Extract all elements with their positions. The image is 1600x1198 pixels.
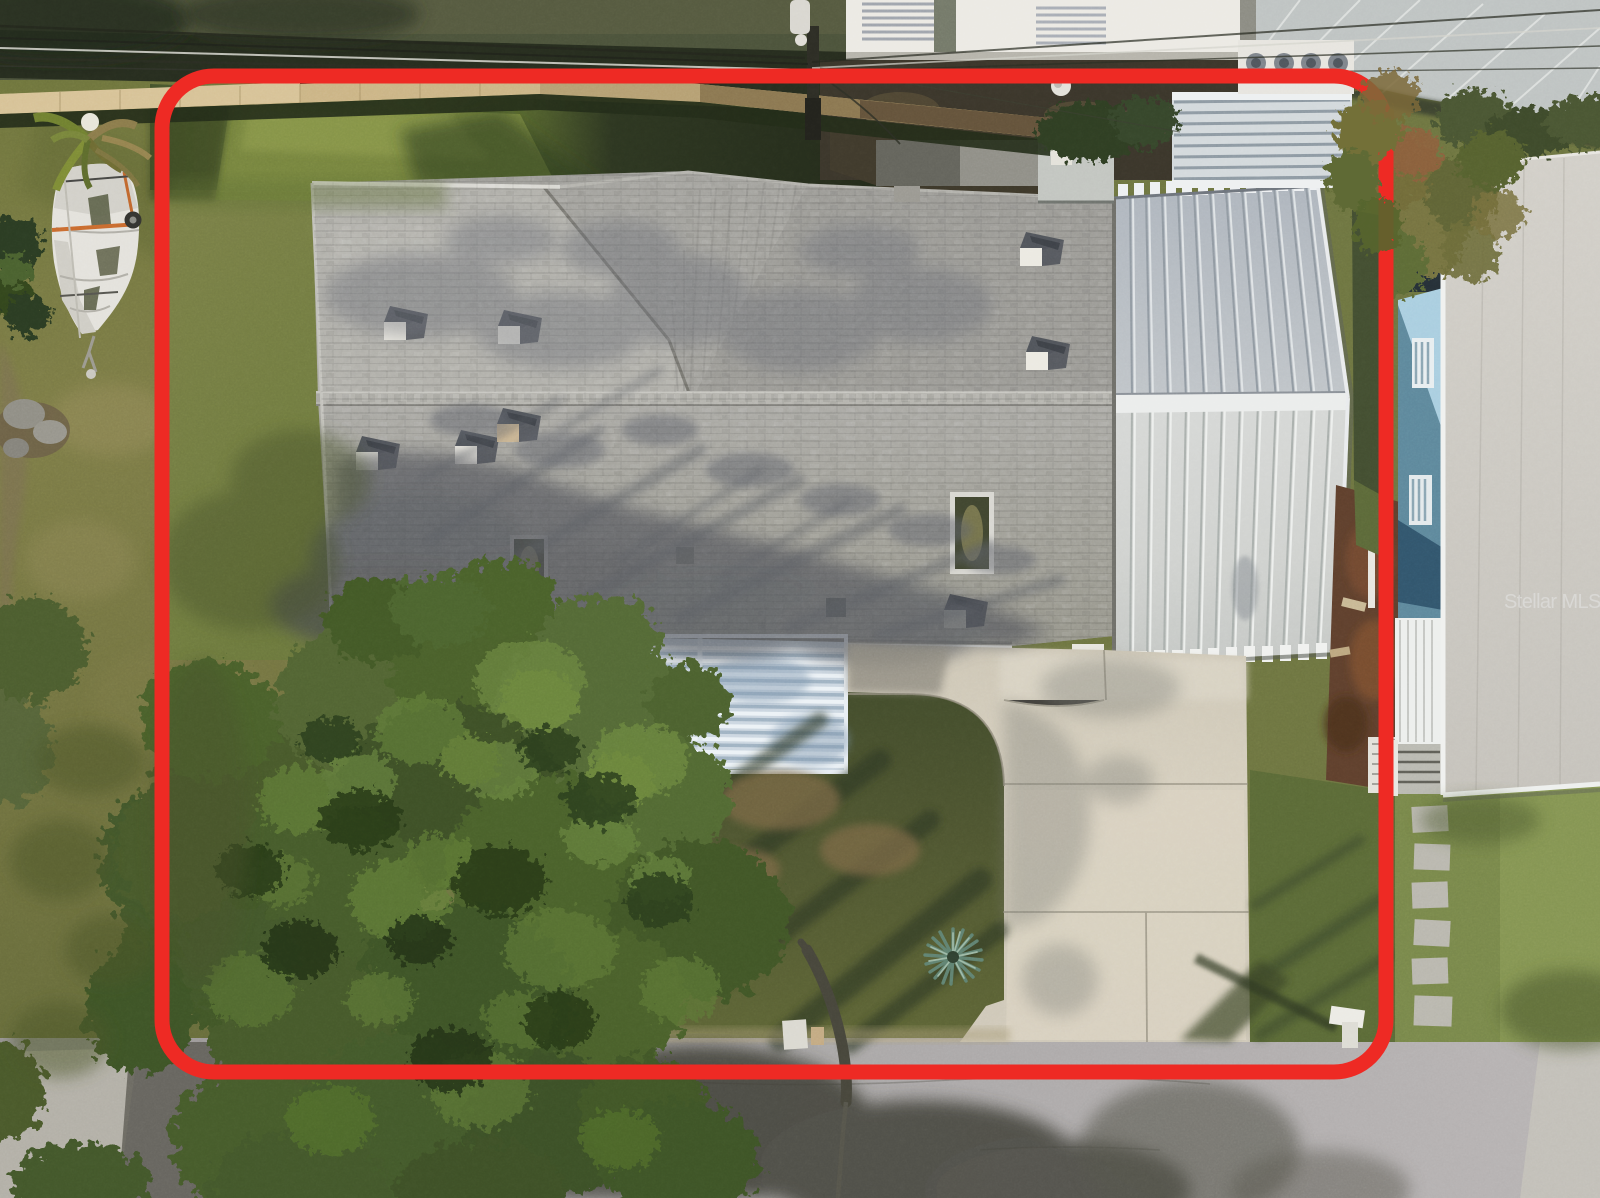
svg-text:Stellar MLS: Stellar MLS bbox=[1504, 591, 1600, 613]
